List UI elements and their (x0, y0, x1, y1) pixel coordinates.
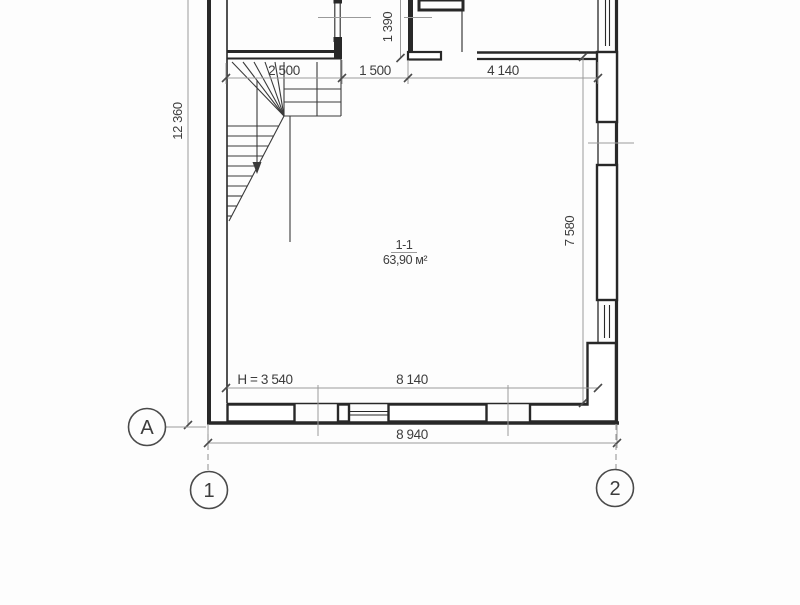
dim-right-inner-height: 7 580 (562, 216, 577, 247)
bottom-wall-pier (228, 405, 295, 422)
dim-overall-width: 8 940 (396, 427, 428, 442)
room-number: 1-1 (396, 238, 413, 252)
dim-inner-width: 8 140 (396, 372, 428, 387)
wall-corner (334, 42, 342, 59)
interior-walls (227, 0, 598, 60)
arrow-head (253, 162, 262, 174)
room-area: 63,90 м² (383, 253, 428, 267)
dim-main-bay: 4 140 (487, 63, 519, 78)
floor-plan-canvas: 2 500 1 500 4 140 1 390 12 360 7 580 8 1… (0, 0, 800, 600)
window-cap (334, 0, 343, 4)
dimension-texts: 2 500 1 500 4 140 1 390 12 360 7 580 8 1… (170, 12, 577, 442)
lower-flight-treads (228, 116, 291, 242)
stair-direction-arrow (253, 80, 262, 174)
room-label: 1-1 63,90 м² (383, 238, 428, 267)
floor-plan-drawing: 2 500 1 500 4 140 1 390 12 360 7 580 8 1… (0, 0, 800, 600)
dim-stair-bay: 2 500 (268, 63, 300, 78)
dim-overall-height: 12 360 (170, 102, 185, 140)
right-wall-pier (597, 165, 617, 300)
staircase (228, 59, 342, 242)
dim-top-offset: 1 390 (380, 12, 395, 43)
top-edge-wall-fragment (419, 0, 463, 10)
room-height-note: H = 3 540 (237, 372, 292, 387)
right-wall-pier (597, 52, 617, 122)
axis-label-1: 1 (203, 480, 214, 502)
window-cap (334, 37, 343, 42)
bottom-wall-pier (389, 405, 487, 422)
axis-label-a: A (140, 417, 154, 439)
dim-hall: 1 500 (359, 63, 391, 78)
corner-pier (530, 343, 616, 422)
bottom-window-jamb (338, 405, 349, 422)
axis-label-2: 2 (609, 478, 620, 500)
partition-foot (408, 52, 441, 60)
